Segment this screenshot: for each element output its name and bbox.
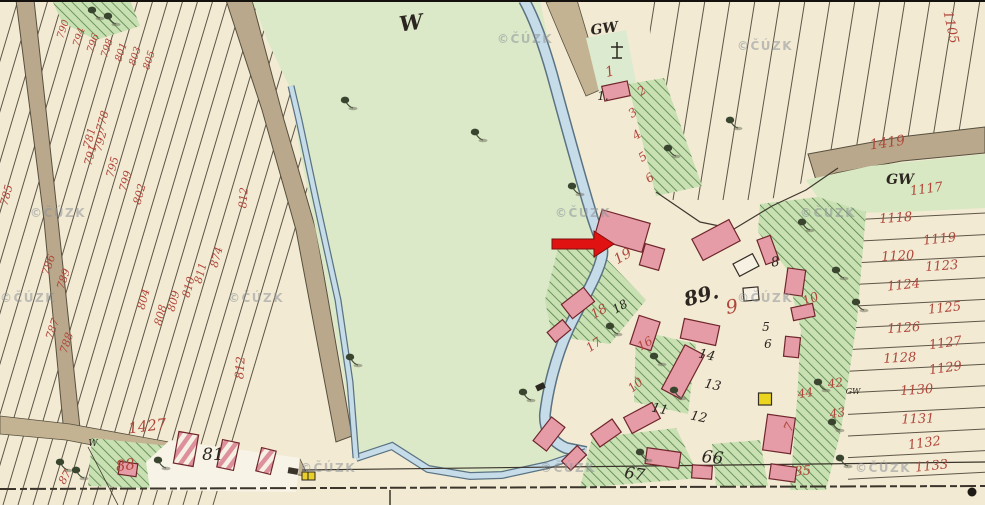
watermark: ©ČÚZK xyxy=(0,290,56,305)
house-81: 81 xyxy=(202,445,224,465)
house-5: 5 xyxy=(762,320,770,334)
watermark: ©ČÚZK xyxy=(737,290,793,305)
building xyxy=(769,464,797,482)
label-w-small: W xyxy=(88,439,98,449)
building xyxy=(763,414,796,454)
watermark: ©ČÚZK xyxy=(855,460,911,475)
building xyxy=(783,336,800,357)
parcel-43: 43 xyxy=(828,405,846,421)
label-gw-small: GW xyxy=(846,387,861,396)
watermark: ©ČÚZK xyxy=(737,38,793,53)
parcel-44: 44 xyxy=(796,385,814,401)
watermark: ©ČÚZK xyxy=(228,290,284,305)
parcel-35: 35 xyxy=(794,463,812,479)
parcel-1128: 1128 xyxy=(883,350,917,367)
parcel-1130: 1130 xyxy=(900,382,934,399)
watermark: ©ČÚZK xyxy=(555,205,611,220)
parcel-1131: 1131 xyxy=(901,411,935,427)
parcel-88: 88 xyxy=(115,455,136,475)
map-canvas: WGW1.89.816667GWGWW856141312111812345619… xyxy=(0,0,985,505)
watermark: ©ČÚZK xyxy=(497,31,553,46)
survey-dot xyxy=(968,488,977,497)
house-6: 6 xyxy=(764,337,772,351)
parcel-42: 42 xyxy=(826,375,844,391)
parcel-812-a: 812 xyxy=(236,187,250,209)
watermark: ©ČÚZK xyxy=(540,460,596,475)
watermark: ©ČÚZK xyxy=(300,460,356,475)
parcel-812-b: 812 xyxy=(232,356,248,380)
cadastral-map: WGW1.89.816667GWGWW856141312111812345619… xyxy=(0,0,985,505)
house-67: 67 xyxy=(623,463,647,485)
parcel-1123: 1123 xyxy=(925,258,959,275)
house-66: 66 xyxy=(701,447,725,469)
building xyxy=(759,393,772,405)
watermark: ©ČÚZK xyxy=(30,205,86,220)
parcel-1120: 1120 xyxy=(881,248,915,265)
watermark: ©ČÚZK xyxy=(800,205,856,220)
parcel-1126: 1126 xyxy=(887,320,921,337)
parcel-1118: 1118 xyxy=(879,210,913,227)
house-1: 1. xyxy=(597,89,608,103)
